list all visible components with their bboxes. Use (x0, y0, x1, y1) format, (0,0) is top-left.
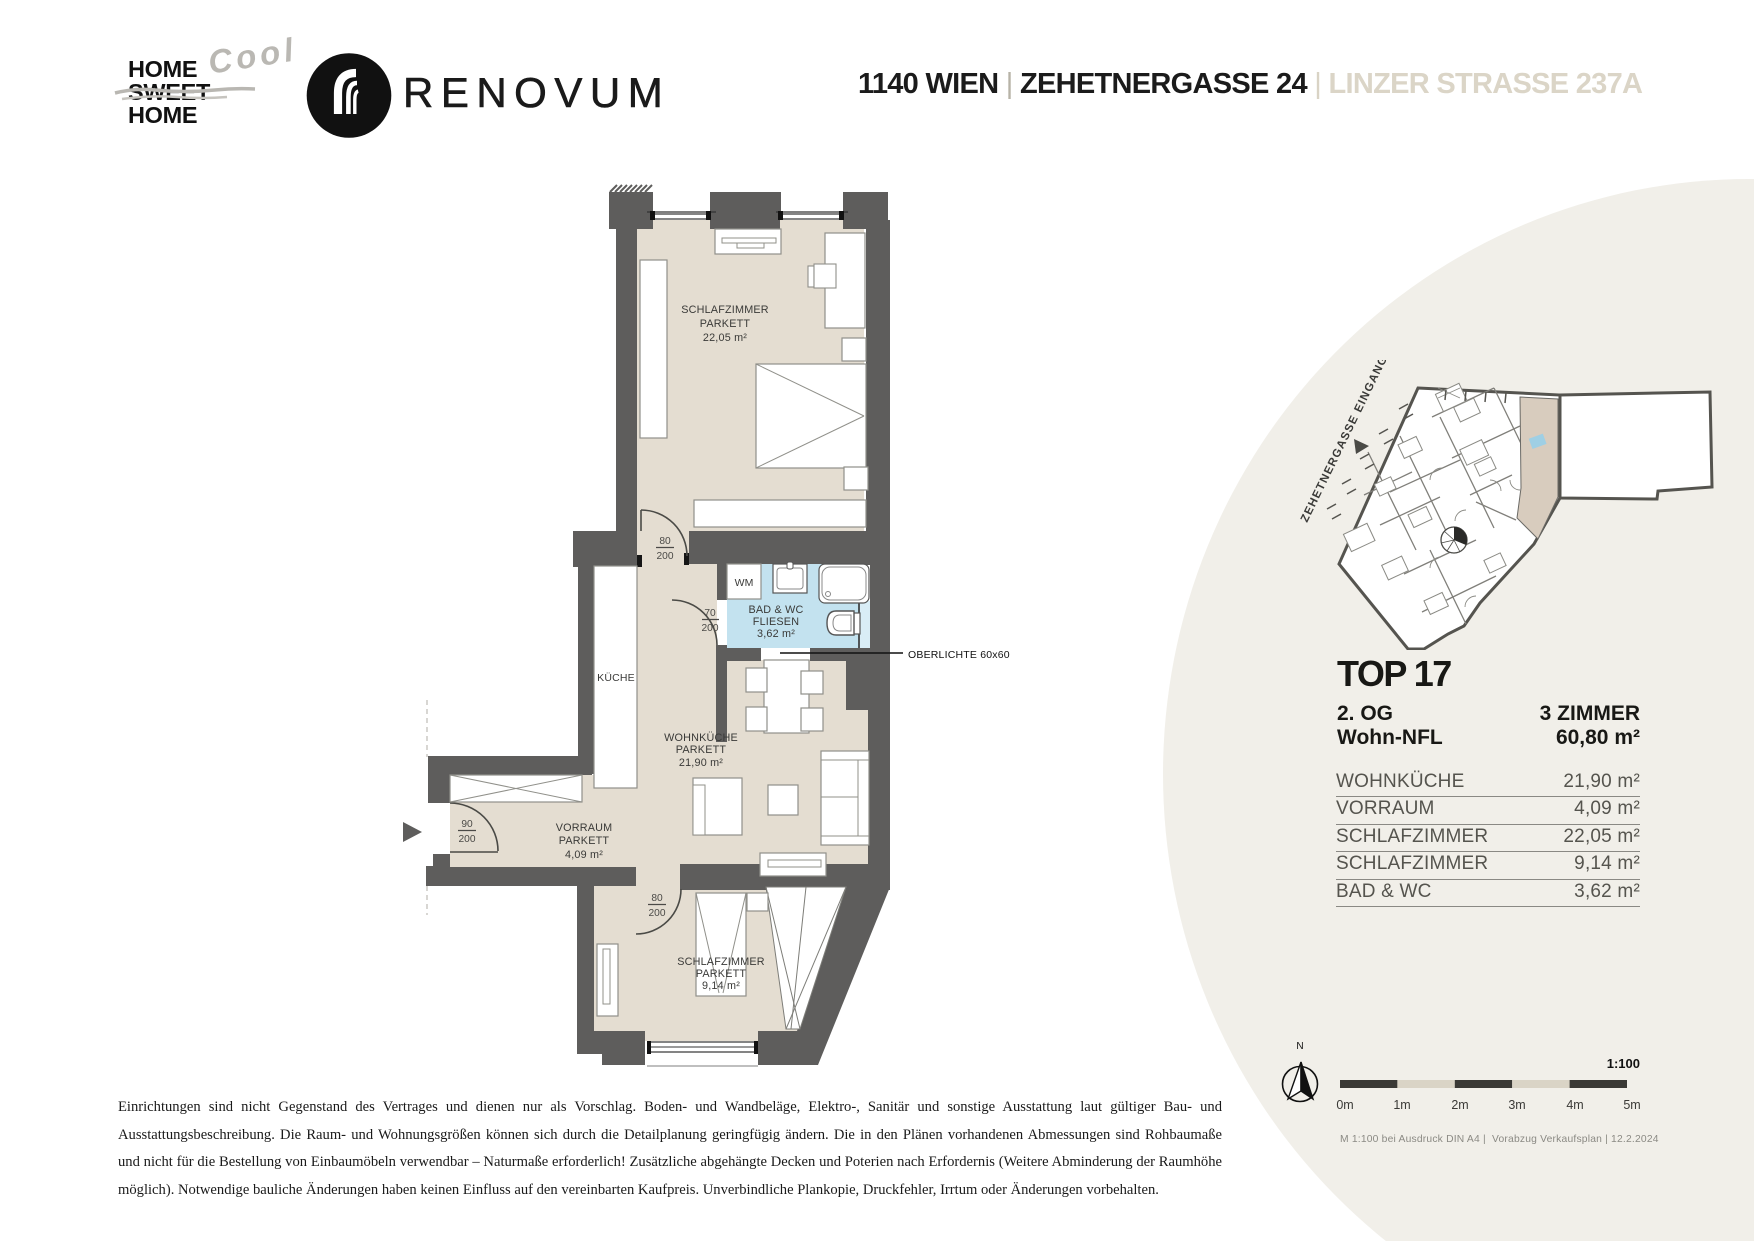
svg-text:PARKETT: PARKETT (559, 835, 610, 847)
svg-text:FLIESEN: FLIESEN (753, 616, 799, 628)
svg-text:OBERLICHTE 60x60: OBERLICHTE 60x60 (908, 649, 1010, 661)
svg-text:KÜCHE: KÜCHE (597, 672, 635, 684)
svg-text:22,05 m²: 22,05 m² (703, 332, 747, 344)
svg-text:9,14 m²: 9,14 m² (702, 980, 740, 992)
svg-text:200: 200 (657, 551, 674, 562)
svg-text:BAD & WC: BAD & WC (749, 604, 804, 616)
svg-text:80: 80 (651, 893, 663, 904)
svg-text:3,62 m²: 3,62 m² (757, 628, 795, 640)
svg-text:80: 80 (659, 536, 671, 547)
svg-text:SCHLAFZIMMER: SCHLAFZIMMER (681, 304, 769, 316)
svg-text:SCHLAFZIMMER: SCHLAFZIMMER (677, 956, 765, 968)
svg-text:PARKETT: PARKETT (676, 744, 727, 756)
svg-text:WM: WM (735, 577, 754, 589)
svg-text:N: N (1296, 1041, 1303, 1052)
svg-text:200: 200 (702, 623, 719, 634)
svg-text:200: 200 (649, 908, 666, 919)
svg-text:200: 200 (459, 834, 476, 845)
svg-text:90: 90 (461, 819, 473, 830)
svg-text:PARKETT: PARKETT (696, 968, 747, 980)
svg-text:WOHNKÜCHE: WOHNKÜCHE (664, 732, 738, 744)
svg-text:VORRAUM: VORRAUM (556, 822, 613, 834)
svg-text:21,90 m²: 21,90 m² (679, 757, 723, 769)
svg-text:PARKETT: PARKETT (700, 318, 751, 330)
svg-text:70: 70 (704, 608, 716, 619)
svg-text:4,09 m²: 4,09 m² (565, 849, 603, 861)
